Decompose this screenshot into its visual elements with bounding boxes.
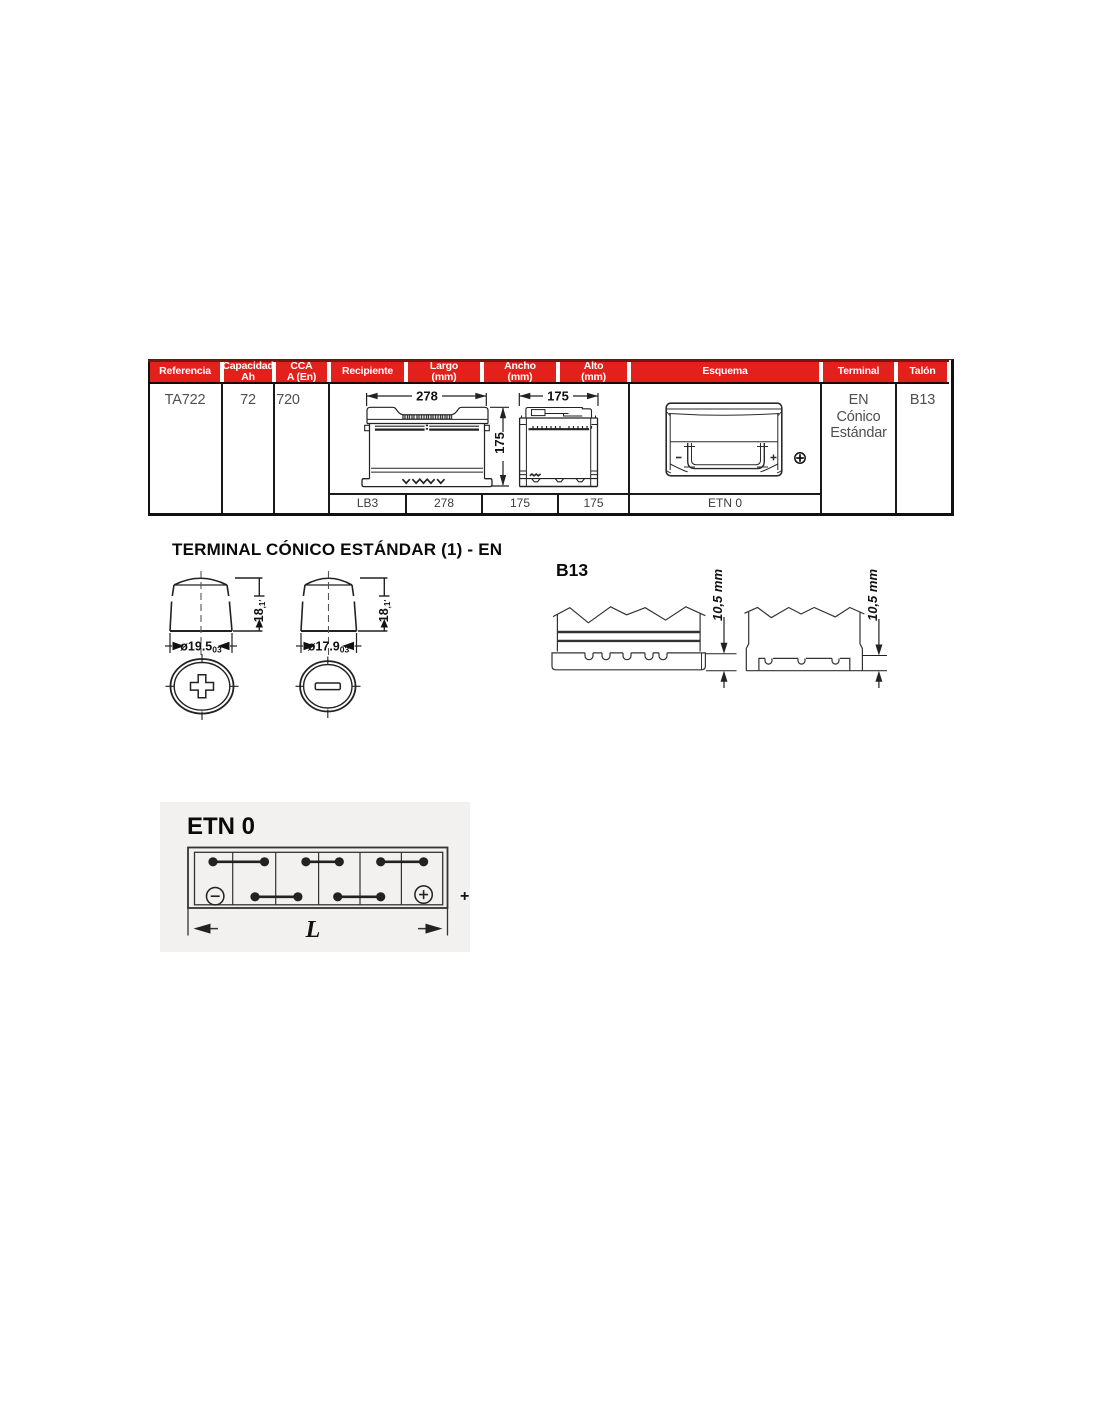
svg-text:10,5 mm: 10,5 mm [710, 569, 725, 621]
svg-text:+: + [460, 888, 469, 905]
svg-text:ø19.503: ø19.503 [180, 640, 222, 655]
svg-text:L: L [305, 917, 321, 943]
svg-text:18,1′: 18,1′ [252, 600, 267, 623]
svg-text:ø17.903: ø17.903 [308, 640, 350, 655]
svg-text:278: 278 [416, 389, 438, 404]
svg-text:10,5 mm: 10,5 mm [865, 569, 880, 621]
svg-text:175: 175 [492, 432, 507, 454]
svg-text:175: 175 [547, 389, 569, 404]
svg-text:18,1′: 18,1′ [377, 600, 392, 623]
